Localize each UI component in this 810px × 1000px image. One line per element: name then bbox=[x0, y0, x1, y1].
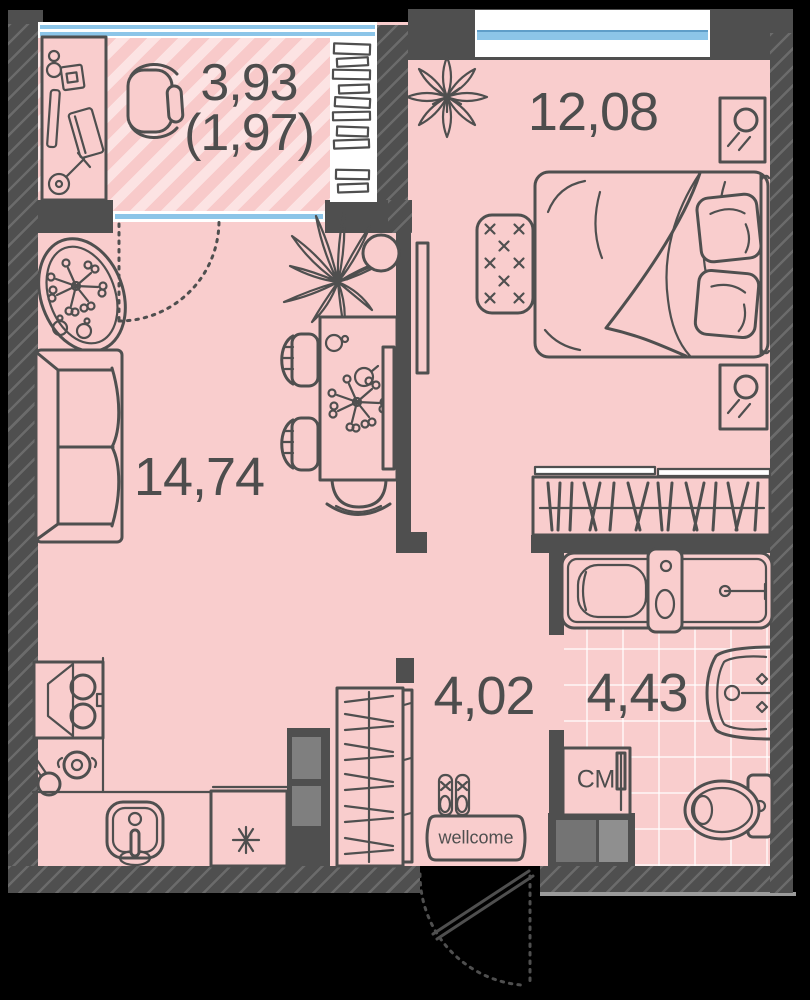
furniture-art bbox=[0, 0, 810, 1000]
nightstand-icon bbox=[720, 98, 765, 162]
office-chair-icon bbox=[128, 64, 183, 137]
bookshelf-icon bbox=[330, 37, 377, 202]
doormat-label: wellcome bbox=[438, 828, 513, 849]
chair-icon bbox=[282, 418, 318, 470]
fridge-icon bbox=[211, 787, 287, 866]
slippers-icon bbox=[439, 775, 469, 815]
chair-icon bbox=[282, 334, 318, 386]
bedroom-area-label: 12,08 bbox=[528, 81, 658, 143]
palm-plant-icon bbox=[284, 212, 399, 328]
dining-table-icon bbox=[282, 317, 397, 515]
hallway-area-label: 4,02 bbox=[433, 665, 534, 727]
balcony-area-value: 3,93 bbox=[184, 58, 314, 108]
stool-icon bbox=[327, 480, 390, 515]
floor-plan: 3,93 (1,97) 12,08 14,74 4,02 4,43 СМ wel… bbox=[0, 0, 810, 1000]
star-plant-icon bbox=[407, 57, 487, 137]
balcony-door-swing-icon bbox=[119, 221, 219, 321]
pan-icon bbox=[32, 760, 60, 795]
tv-icon bbox=[417, 243, 428, 373]
bedroom-wardrobe-icon bbox=[533, 467, 770, 535]
sink-icon bbox=[107, 802, 163, 865]
bathtub-icon bbox=[562, 549, 772, 632]
bathroom-area-label: 4,43 bbox=[586, 662, 687, 724]
living-room-area-label: 14,74 bbox=[134, 446, 264, 508]
entrance-door-icon bbox=[420, 871, 533, 985]
balcony-area-label: 3,93 (1,97) bbox=[184, 58, 314, 158]
bed-icon bbox=[535, 172, 769, 357]
hall-wardrobe-icon bbox=[337, 688, 412, 866]
bedroom-rug-icon bbox=[477, 215, 533, 313]
pot-icon bbox=[58, 752, 96, 778]
pillow-icon bbox=[694, 270, 759, 339]
pillow-icon bbox=[696, 193, 762, 263]
toilet-icon bbox=[685, 775, 772, 839]
tv-icon bbox=[383, 347, 394, 469]
desk-icon bbox=[42, 37, 106, 200]
washbasin-icon bbox=[707, 647, 771, 739]
oval-rug-icon bbox=[24, 226, 141, 363]
stove-icon bbox=[34, 662, 103, 738]
sofa-icon bbox=[36, 350, 122, 542]
nightstand-icon bbox=[720, 365, 767, 429]
balcony-area-secondary: (1,97) bbox=[184, 108, 314, 158]
washing-machine-label: СМ bbox=[577, 766, 616, 795]
